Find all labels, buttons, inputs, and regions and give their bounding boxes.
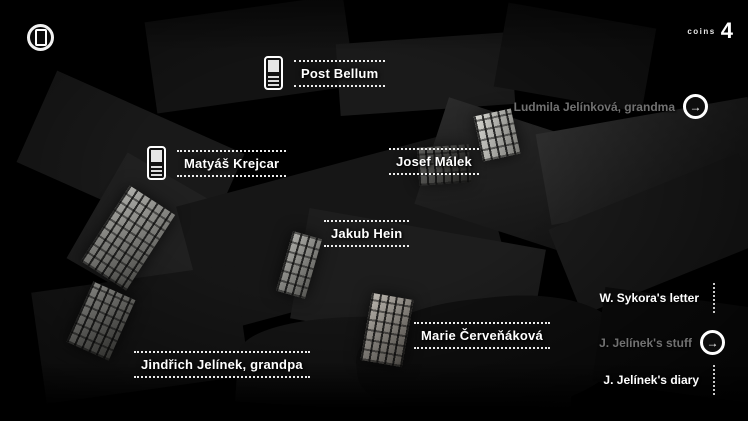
side-item-label: J. Jelínek's stuff <box>599 336 692 350</box>
side-item-label: W. Sykora's letter <box>599 291 699 305</box>
marker-jakub-hein[interactable]: Jakub Hein <box>324 220 409 247</box>
mobile-phone-icon <box>147 146 166 180</box>
dotted-divider <box>713 283 715 313</box>
marker-jindrich-jelinek[interactable]: Jindřich Jelínek, grandpa <box>134 351 310 378</box>
arrow-circle-icon[interactable]: → <box>683 94 708 119</box>
marker-post-bellum[interactable]: Post Bellum <box>264 56 385 90</box>
marker-label: Post Bellum <box>294 60 385 87</box>
marker-marie-cervenakova[interactable]: Marie Červeňáková <box>414 322 550 349</box>
coins-counter: coins 4 <box>687 20 733 42</box>
marker-label: Jakub Hein <box>324 220 409 247</box>
building-block <box>31 264 250 403</box>
side-item-jelinek-stuff[interactable]: J. Jelínek's stuff → <box>599 330 725 355</box>
mobile-phone-icon <box>264 56 283 90</box>
phone-icon <box>35 29 47 46</box>
arrow-circle-icon[interactable]: → <box>700 330 725 355</box>
side-item-label: J. Jelínek's diary <box>603 373 699 387</box>
game-map-screen: coins 4 Post Bellum Matyáš Krejcar Josef… <box>0 0 748 421</box>
menu-phone-button[interactable] <box>27 24 54 51</box>
dotted-divider <box>713 365 715 395</box>
marker-label: Jindřich Jelínek, grandpa <box>134 351 310 378</box>
coins-label: coins <box>687 27 715 36</box>
coins-value: 4 <box>721 20 733 42</box>
marker-label: Marie Červeňáková <box>414 322 550 349</box>
marker-label: Josef Málek <box>389 148 479 175</box>
side-item-jelinek-diary[interactable]: J. Jelínek's diary <box>603 365 715 395</box>
side-item-sykora-letter[interactable]: W. Sykora's letter <box>599 283 715 313</box>
marker-matyas-krejcar[interactable]: Matyáš Krejcar <box>147 146 286 180</box>
marker-label: Matyáš Krejcar <box>177 150 286 177</box>
marker-josef-malek[interactable]: Josef Málek <box>389 148 479 175</box>
side-item-ludmila[interactable]: Ludmila Jelínková, grandma → <box>514 94 708 119</box>
side-item-label: Ludmila Jelínková, grandma <box>514 100 675 114</box>
